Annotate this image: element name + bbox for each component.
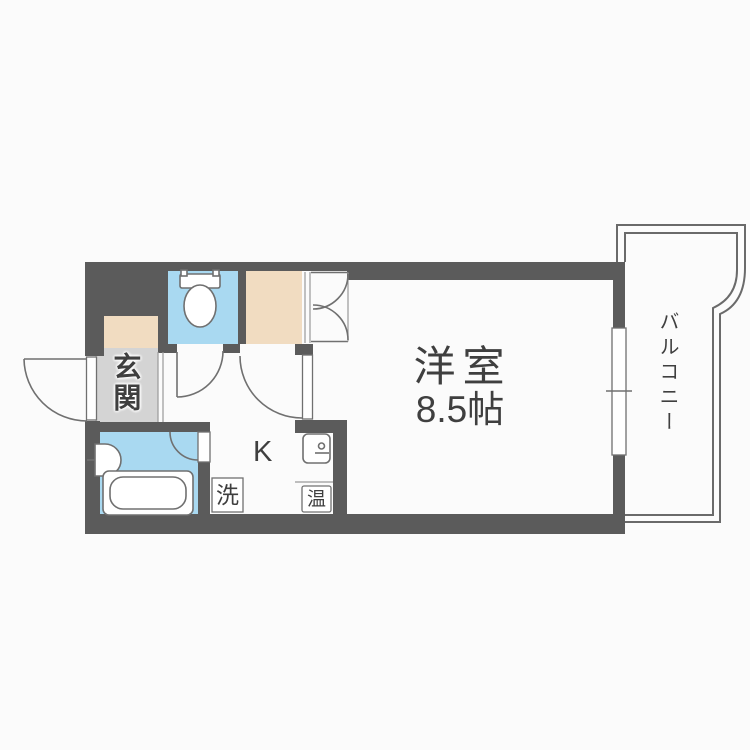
bathtub-inner <box>110 477 186 509</box>
toilet-door-arc <box>177 351 223 397</box>
floor-plan: 洋室 8.5帖 K 玄関 バルコニー 洗 温 <box>0 0 750 750</box>
balcony-label: バルコニー <box>656 311 677 436</box>
water-heater-label: 温 <box>302 490 331 510</box>
toilet-tank-tab-right <box>213 270 219 276</box>
bathroom-door-arc <box>170 432 198 460</box>
entrance-label: 玄関 <box>111 352 140 414</box>
closet-door-arc-top <box>313 274 348 309</box>
main-room-door-leaf <box>303 355 313 419</box>
floor-plan-page: { "colors": { "background": "#fbfbfb", "… <box>0 0 750 750</box>
toilet-bowl-icon <box>184 285 216 327</box>
entrance-door-arc <box>24 359 87 421</box>
toilet-tank-tab-left <box>181 270 187 276</box>
bathroom-door-leaf <box>198 432 210 462</box>
kitchen-sink-icon <box>303 434 330 463</box>
balcony-outline-outer <box>617 225 745 522</box>
kitchen-label: K <box>253 437 272 467</box>
closet-door-arc-bottom <box>313 305 348 340</box>
main-room-door-arc <box>240 356 302 418</box>
main-room-size-label: 8.5帖 <box>390 391 530 430</box>
washing-machine-label: 洗 <box>212 483 243 507</box>
entrance-door-leaf <box>87 357 97 420</box>
main-room-label: 洋室 <box>390 345 535 389</box>
